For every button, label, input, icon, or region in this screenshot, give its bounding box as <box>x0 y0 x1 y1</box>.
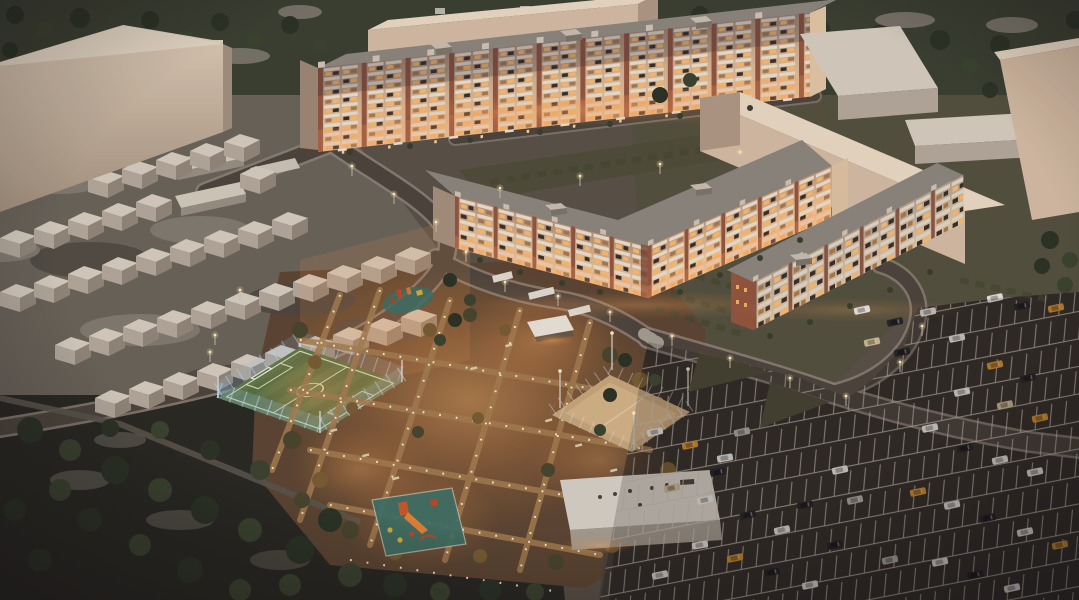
residential-complex-render <box>0 0 1079 600</box>
render-viewport <box>0 0 1079 600</box>
dusk-tint <box>0 0 1079 600</box>
